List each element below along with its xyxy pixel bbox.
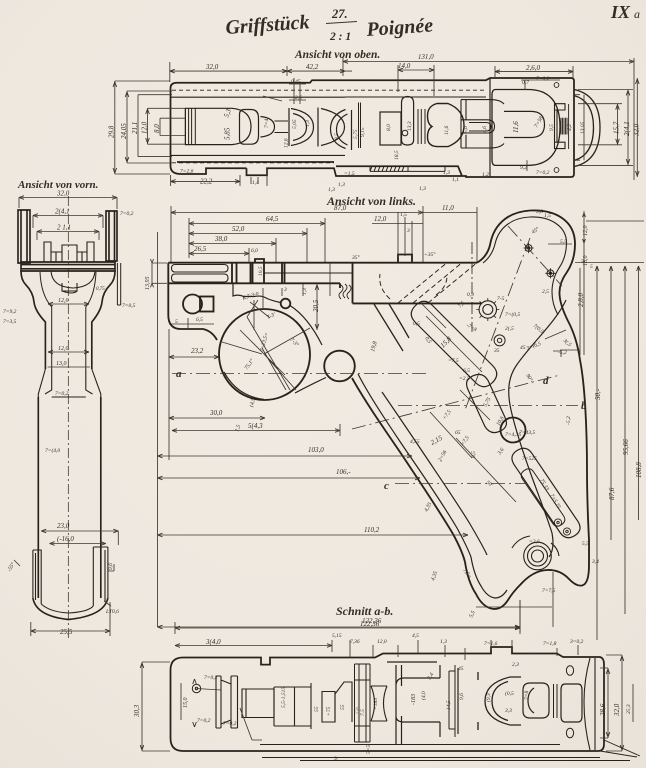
svg-text:12,0: 12,0 [141, 121, 149, 134]
svg-text:6,5: 6,5 [471, 451, 477, 458]
svg-text:1,5: 1,5 [544, 213, 551, 219]
svg-text:7=0,2: 7=0,2 [120, 211, 134, 217]
svg-text:23,0: 23,0 [57, 522, 70, 530]
svg-text:0,5: 0,5 [413, 321, 420, 327]
svg-text:7=0,2: 7=0,2 [223, 721, 237, 727]
svg-text:87,0: 87,0 [334, 204, 347, 212]
svg-text:+75: +75 [326, 707, 332, 716]
svg-text:5=5: 5=5 [366, 745, 372, 754]
svg-text:5,5: 5,5 [582, 541, 589, 547]
svg-text:Ansicht von oben.: Ansicht von oben. [294, 49, 380, 61]
svg-text:9,2: 9,2 [520, 165, 527, 171]
svg-text:1,3: 1,3 [305, 120, 311, 127]
svg-text:21,1: 21,1 [131, 122, 139, 134]
svg-text:2(4,1: 2(4,1 [55, 208, 70, 216]
svg-text:2,6,0: 2,6,0 [526, 64, 541, 72]
svg-text:14,5: 14,5 [445, 700, 452, 710]
svg-text:12,0: 12,0 [58, 298, 69, 304]
svg-text:22,2: 22,2 [200, 178, 213, 186]
svg-text:12,0: 12,0 [374, 215, 387, 223]
svg-text:3=0,2: 3=0,2 [569, 639, 584, 645]
svg-text:7=0,2: 7=0,2 [536, 170, 550, 176]
svg-text:87,6: 87,6 [608, 487, 616, 500]
svg-text:2(4,1: 2(4,1 [623, 121, 631, 136]
svg-text:55: 55 [340, 704, 346, 710]
svg-text:32,0: 32,0 [613, 703, 621, 717]
svg-text:38,0: 38,0 [214, 235, 228, 243]
svg-text:1,1: 1,1 [452, 177, 459, 183]
svg-text:29,8: 29,8 [108, 125, 116, 138]
svg-text:7=9,2: 7=9,2 [3, 309, 17, 315]
svg-text:=2,5: =2,5 [459, 376, 470, 382]
svg-text:7,36: 7,36 [350, 639, 360, 645]
svg-text:1,5: 1,5 [400, 212, 407, 218]
svg-text:11,6: 11,6 [512, 121, 520, 133]
svg-text:-183: -183 [411, 694, 417, 705]
svg-text:3(4,0: 3(4,0 [205, 638, 221, 646]
svg-text:(0,5: (0,5 [505, 690, 514, 697]
svg-text:6,5: 6,5 [463, 368, 470, 374]
svg-text:25,3: 25,3 [626, 704, 632, 714]
svg-text:5,85: 5,85 [224, 127, 232, 140]
svg-text:+35°: +35° [424, 251, 436, 258]
svg-text:-5,2: -5,2 [558, 350, 567, 356]
svg-text:1,4: 1,4 [252, 179, 259, 186]
svg-text:Schnitt a-b.: Schnitt a-b. [336, 604, 393, 618]
svg-text:=7,5: =7,5 [448, 358, 459, 364]
svg-text:-5,2: -5,2 [566, 416, 572, 425]
svg-text:7=7,5: 7=7,5 [542, 588, 556, 594]
svg-text:103,0: 103,0 [308, 446, 324, 454]
svg-text:8,0: 8,0 [386, 124, 392, 131]
svg-text:1,3: 1,3 [328, 187, 335, 193]
svg-text:6,5: 6,5 [196, 317, 203, 323]
svg-text:8,5: 8,5 [334, 133, 340, 140]
svg-text:106,-: 106,- [336, 468, 351, 476]
svg-text:7=0,2: 7=0,2 [197, 718, 211, 724]
svg-text:42,2: 42,2 [306, 63, 319, 71]
svg-text:12,6: 12,6 [284, 138, 290, 148]
svg-text:7.5: 7.5 [360, 709, 366, 716]
svg-text:7-5: 7-5 [497, 296, 505, 302]
svg-text:6,0: 6,0 [251, 248, 258, 254]
svg-text:30,0: 30,0 [209, 409, 223, 417]
svg-text:7=3,5: 7=3,5 [3, 319, 17, 325]
svg-text:(9,3: (9,3 [485, 693, 492, 702]
svg-text:12,0: 12,0 [583, 226, 589, 237]
svg-text:5,75: 5,75 [353, 129, 359, 139]
svg-text:3: 3 [406, 228, 410, 234]
svg-text:5,05: 5,05 [292, 119, 298, 129]
svg-text:9,6: 9,6 [459, 693, 465, 700]
svg-text:8,0: 8,0 [153, 124, 161, 133]
svg-text:28,6: 28,6 [599, 703, 607, 716]
svg-text:5,6: 5,6 [463, 126, 469, 133]
svg-text:5: 5 [581, 259, 584, 265]
svg-text:2,3: 2,3 [512, 662, 519, 668]
svg-text:18,0: 18,0 [583, 256, 589, 267]
svg-text:1,3: 1,3 [302, 288, 308, 295]
svg-text:(4,0: (4,0 [420, 691, 427, 700]
svg-text:=183: =183 [373, 698, 379, 710]
svg-text:5: 5 [590, 264, 593, 270]
svg-text:32,0: 32,0 [205, 63, 219, 71]
svg-text:5,5-1,515: 5,5-1,515 [281, 687, 287, 708]
svg-text:2,5: 2,5 [542, 289, 549, 295]
svg-text:5,5: 5,5 [560, 239, 567, 245]
svg-text:10,5: 10,5 [258, 266, 264, 276]
svg-text:1,3: 1,3 [443, 170, 450, 176]
svg-text:9,15: 9,15 [360, 127, 366, 137]
svg-text:(-16,0: (-16,0 [57, 535, 74, 543]
svg-text:7=1,6: 7=1,6 [484, 641, 498, 647]
svg-text:110,2: 110,2 [364, 526, 380, 534]
svg-text:0,45: 0,45 [291, 78, 301, 85]
svg-text:4,6: 4,6 [481, 126, 488, 133]
svg-text:0,7: 0,7 [522, 80, 529, 86]
svg-text:7=0,5: 7=0,5 [122, 303, 136, 309]
svg-text:24,05: 24,05 [120, 123, 128, 139]
svg-text:50,-: 50,- [594, 388, 602, 400]
svg-text:45: 45 [520, 344, 526, 351]
svg-text:1,3: 1,3 [338, 182, 345, 188]
svg-text:3,3: 3,3 [504, 708, 512, 714]
svg-text:IX: IX [610, 2, 631, 22]
svg-text:7=4: 7=4 [263, 119, 270, 128]
svg-text:4,5: 4,5 [412, 632, 419, 639]
svg-text:1,2: 1,2 [482, 172, 489, 178]
svg-text:4,2: 4,2 [566, 124, 573, 131]
svg-text:20,5: 20,5 [312, 299, 320, 312]
svg-text:23,2: 23,2 [191, 347, 204, 355]
svg-text:2(,5: 2(,5 [505, 325, 514, 332]
svg-text:11,6: 11,6 [444, 126, 450, 135]
svg-text:=1,5: =1,5 [344, 171, 355, 177]
svg-text:18,5: 18,5 [394, 150, 400, 160]
svg-text:27.: 27. [331, 7, 348, 21]
svg-text:13,0: 13,0 [56, 361, 67, 367]
svg-text:7=8: 7=8 [524, 691, 530, 700]
svg-text:32,0: 32,0 [633, 123, 641, 137]
svg-text:3,4: 3,4 [591, 558, 599, 565]
svg-text:0,75: 0,75 [96, 287, 105, 292]
svg-text:0,9: 0,9 [467, 292, 474, 298]
svg-text:52,0: 52,0 [232, 225, 245, 233]
svg-text:7=2,6: 7=2,6 [180, 169, 194, 175]
svg-text:7=1,8: 7=1,8 [543, 641, 557, 647]
svg-text:15,0: 15,0 [183, 698, 189, 709]
svg-text:5: 5 [175, 319, 178, 325]
svg-text:15,7: 15,7 [613, 121, 621, 134]
svg-text:7=0,2: 7=0,2 [204, 675, 218, 681]
svg-text:12,0: 12,0 [377, 639, 387, 645]
svg-text:131,0: 131,0 [418, 52, 435, 61]
svg-text:=2,6: =2,6 [529, 539, 540, 545]
svg-text:25,5: 25,5 [60, 628, 73, 636]
svg-text:65: 65 [455, 430, 461, 436]
svg-text:9.: 9. [334, 756, 338, 762]
svg-text:11,0: 11,0 [442, 204, 454, 212]
svg-text:9,5: 9,5 [549, 124, 555, 131]
svg-text:35: 35 [493, 348, 500, 354]
svg-text:7=(0,5: 7=(0,5 [505, 311, 520, 318]
svg-text:b: b [581, 400, 587, 412]
svg-text:LT0,6: LT0,6 [105, 609, 119, 615]
svg-text:7=(4,0: 7=(4,0 [45, 447, 60, 454]
svg-text:13,95: 13,95 [145, 277, 151, 291]
svg-text:2 1,1: 2 1,1 [57, 224, 71, 232]
svg-text:13,3: 13,3 [407, 121, 413, 131]
svg-text:35°: 35° [351, 254, 361, 261]
svg-text:122,36: 122,36 [360, 620, 380, 628]
svg-text:1,3: 1,3 [440, 639, 447, 645]
svg-text:45: 45 [458, 665, 464, 672]
svg-text:108,8: 108,8 [635, 462, 643, 478]
svg-text:55: 55 [314, 706, 320, 712]
svg-text:3,8: 3,8 [535, 209, 543, 215]
svg-text:5,15: 5,15 [332, 633, 342, 639]
svg-text:14,0: 14,0 [398, 62, 411, 70]
svg-text:7=0,2: 7=0,2 [536, 76, 550, 82]
svg-text:4,55: 4,55 [410, 438, 420, 445]
svg-text:7=43,5: 7=43,5 [519, 429, 535, 436]
svg-text:7=525: 7=525 [522, 456, 537, 462]
svg-text:2,6: 2,6 [295, 95, 302, 101]
svg-text:7=0,2: 7=0,2 [55, 391, 69, 397]
svg-text:1,3: 1,3 [419, 186, 426, 192]
svg-text:30,3: 30,3 [133, 704, 141, 718]
svg-text:d: d [543, 375, 549, 387]
svg-text:9,6: 9,6 [108, 563, 114, 570]
svg-text:26,5: 26,5 [194, 245, 207, 253]
svg-text:12,0: 12,0 [58, 346, 69, 352]
svg-text:13,05: 13,05 [580, 121, 586, 134]
svg-text:a: a [634, 7, 640, 21]
svg-text:c: c [384, 480, 389, 492]
svg-text:a: a [176, 368, 182, 380]
svg-text:32,0: 32,0 [56, 190, 70, 198]
svg-text:2 : 1: 2 : 1 [329, 31, 351, 43]
svg-text:5(4,3: 5(4,3 [248, 422, 263, 430]
svg-text:2,8,0: 2,8,0 [577, 293, 585, 308]
svg-text:3: 3 [283, 287, 287, 293]
svg-text:95,66: 95,66 [622, 439, 630, 455]
svg-text:64,5: 64,5 [266, 215, 279, 223]
